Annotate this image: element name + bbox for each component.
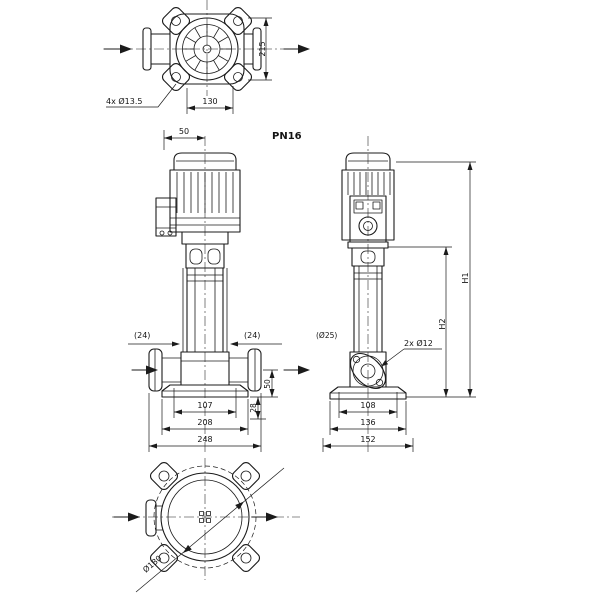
bolt-hole xyxy=(241,471,251,481)
bolt-hole xyxy=(159,471,169,481)
bolt-hole xyxy=(234,17,243,26)
dim-height-h1: H1 xyxy=(396,162,476,397)
motor-fins xyxy=(177,172,233,213)
dim-text: H2 xyxy=(438,318,447,329)
dim-text: 107 xyxy=(197,401,212,410)
flow-arrow-in xyxy=(114,513,140,522)
label-right-port: (24) xyxy=(230,331,282,347)
bolt-hole xyxy=(234,73,243,82)
bottom-view: Ø180 xyxy=(112,458,300,592)
dim-base-height-28: 28 xyxy=(249,397,266,419)
dim-text: 215 xyxy=(258,41,267,56)
dim-port-height-50: 50 xyxy=(250,370,278,397)
flow-arrow-out xyxy=(284,45,310,54)
dim-top-width-50: 50 xyxy=(164,127,205,150)
label-bolt-holes: 4x Ø13.5 xyxy=(106,84,176,107)
label-left-port: (24) xyxy=(128,331,180,347)
dim-text: 136 xyxy=(360,418,375,427)
label-base-holes: 2x Ø12 xyxy=(381,338,442,367)
dim-text: 28 xyxy=(249,403,258,413)
mounting-lug xyxy=(160,61,191,92)
bolt-holes-text: 4x Ø13.5 xyxy=(106,96,142,106)
motor-fins xyxy=(348,172,390,195)
dim-text: 152 xyxy=(360,435,375,444)
dim-hole-spacing-130: 130 xyxy=(187,86,233,114)
dim-height-h2: H2 xyxy=(388,247,452,397)
label-text: (24) xyxy=(134,331,150,340)
terminal-screw xyxy=(356,202,363,209)
pipe-bore-label: (Ø25) xyxy=(316,331,337,340)
front-view: 50 (24) xyxy=(128,127,310,452)
bolt-hole xyxy=(241,553,251,563)
bolt-hole xyxy=(172,17,181,26)
top-view: 215 130 4x Ø13.5 xyxy=(104,0,310,114)
dim-text: 248 xyxy=(197,435,212,444)
dim-text: 208 xyxy=(197,418,212,427)
discharge-flange-front xyxy=(248,349,261,391)
dim-text: 50 xyxy=(179,127,189,136)
suction-flange xyxy=(146,500,156,536)
lantern-window xyxy=(190,249,202,264)
mounting-lug xyxy=(222,61,253,92)
cable-gland xyxy=(160,231,164,235)
dim-text: 130 xyxy=(202,97,217,106)
drawing-canvas: 215 130 4x Ø13.5 PN16 50 xyxy=(0,0,600,600)
label-text: 2x Ø12 xyxy=(404,338,433,348)
dim-text: 50 xyxy=(263,379,272,389)
bolt-hole xyxy=(172,73,181,82)
mounting-lug xyxy=(160,5,191,36)
dim-text: 108 xyxy=(360,401,375,410)
flow-arrow-out xyxy=(284,366,310,375)
side-view: (Ø25) 2x Ø12 H2 H1 108 1 xyxy=(316,136,476,452)
dim-text: H1 xyxy=(461,272,470,283)
label-text: (24) xyxy=(244,331,260,340)
mounting-lug xyxy=(222,5,253,36)
terminal-box xyxy=(156,198,176,236)
lantern-window xyxy=(208,249,220,264)
pump-dimension-drawing: 215 130 4x Ø13.5 PN16 50 xyxy=(0,0,600,600)
flow-arrow-in xyxy=(104,45,132,54)
pressure-rating-label: PN16 xyxy=(272,131,302,142)
terminal-screw xyxy=(373,202,380,209)
flow-arrow-in xyxy=(132,366,158,375)
dim-text: Ø180 xyxy=(141,553,164,575)
